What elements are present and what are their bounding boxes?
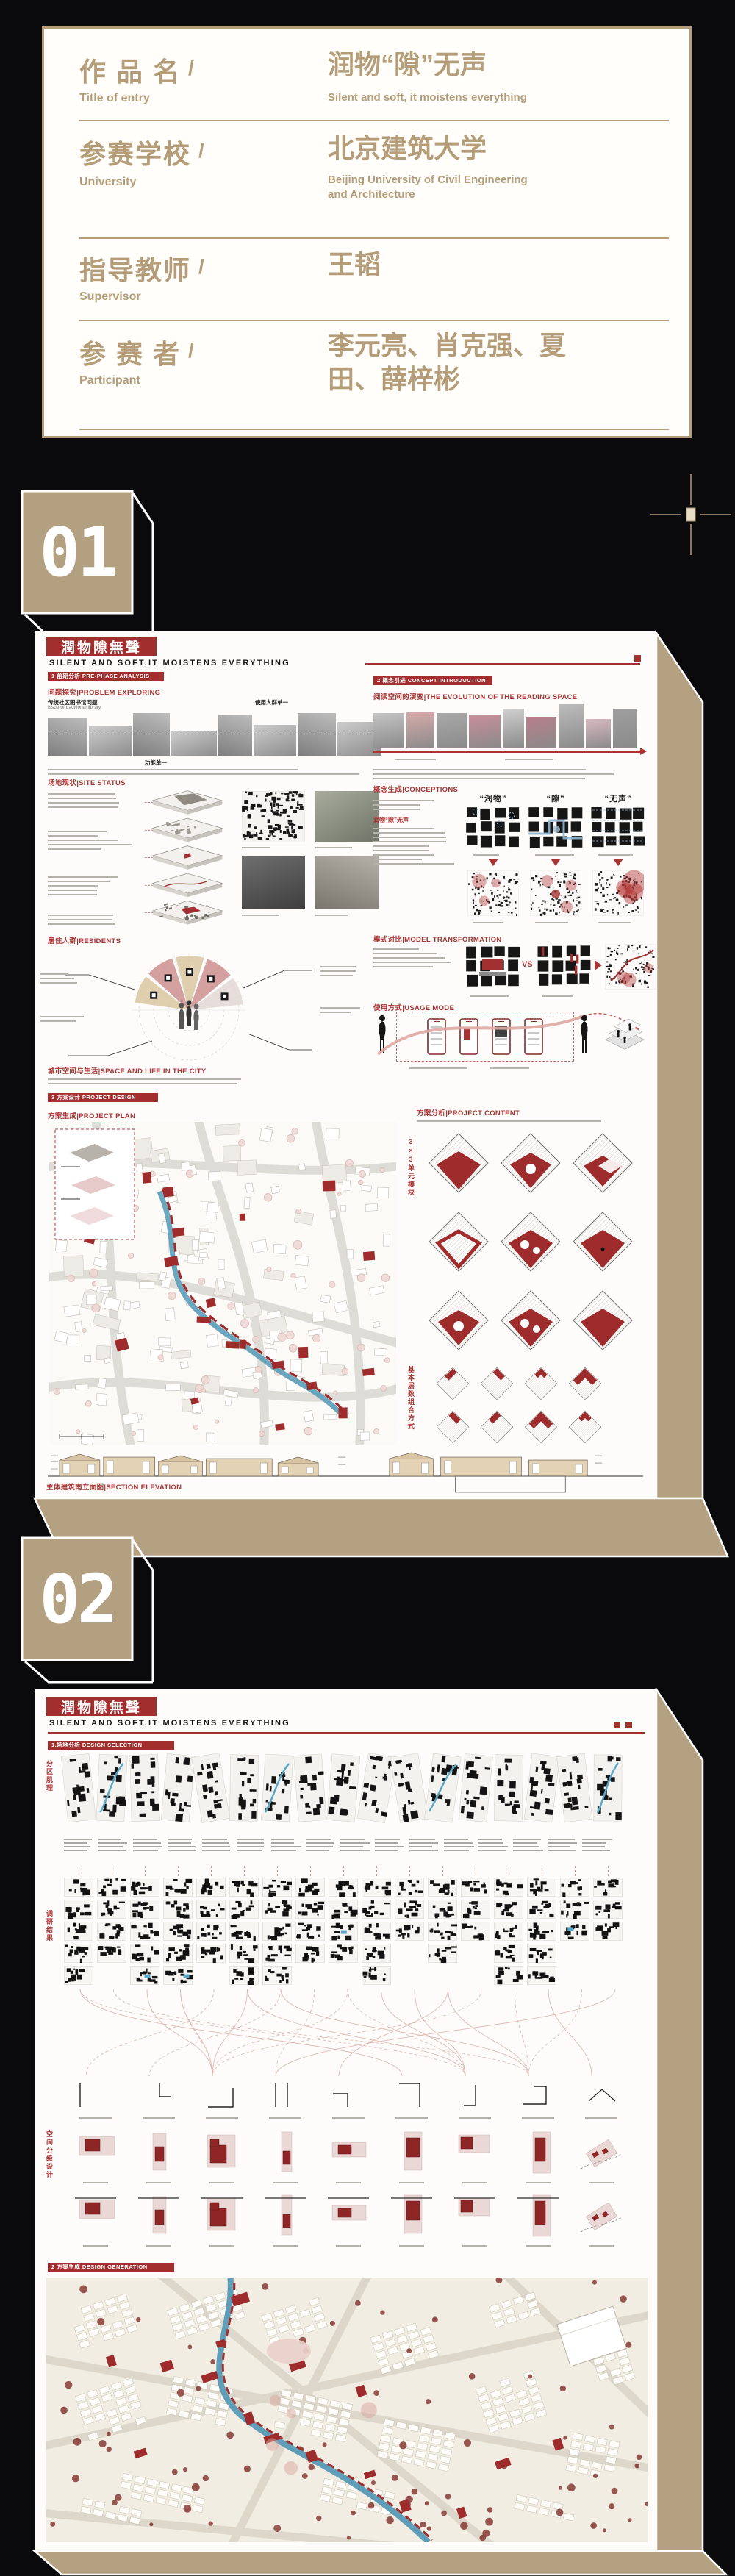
subhead-site: 场地现状|SITE STATUS bbox=[48, 777, 126, 787]
evolution-paragraph bbox=[373, 766, 614, 782]
model-result-map bbox=[605, 944, 656, 993]
crosshair-icon bbox=[650, 474, 731, 555]
space-grading-row-2 bbox=[64, 2192, 645, 2247]
concept-map-caption bbox=[598, 919, 631, 926]
concept-label-3: “无声” bbox=[589, 793, 647, 804]
unit-module-grid bbox=[426, 1131, 635, 1356]
concept-caption bbox=[473, 851, 499, 859]
right-arrow-icon bbox=[595, 960, 602, 970]
vertical-label-module: 3×3单元模块 bbox=[406, 1138, 416, 1197]
model-caption bbox=[470, 992, 509, 1000]
poster2-subtitle: SILENT AND SOFT,IT MOISTENS EVERYTHING bbox=[49, 1719, 290, 1728]
badge-number: 02 bbox=[22, 1538, 132, 1660]
vs-label: VS bbox=[522, 960, 533, 969]
subhead-model: 模式对比|MODEL TRANSFORMATION bbox=[373, 934, 501, 944]
value-supervisor: 王韬 bbox=[328, 248, 637, 282]
down-arrow-icon bbox=[551, 859, 561, 866]
subhead-problem: 问题探究|PROBLEM EXPLORING bbox=[48, 687, 160, 697]
section-1-bar: 1 前期分析 PRE-PHASE ANALYSIS bbox=[48, 672, 164, 681]
down-arrow-icon bbox=[613, 859, 623, 866]
photo-dashed-line bbox=[48, 734, 380, 734]
board-number-badge-2: 02 bbox=[21, 1536, 175, 1689]
label-participant-en: Participant bbox=[79, 374, 140, 387]
value-university: 北京建筑大学 bbox=[328, 132, 637, 165]
poster-board-2: 潤物隙無聲 SILENT AND SOFT,IT MOISTENS EVERYT… bbox=[35, 1689, 656, 2551]
concept-label-1: “润物” bbox=[465, 793, 522, 804]
concept-label-2: “隙” bbox=[527, 793, 584, 804]
img-caption bbox=[242, 844, 270, 851]
concept-map-2 bbox=[530, 870, 581, 920]
axonometric-masterplan bbox=[46, 2278, 648, 2542]
label-supervisor-en: Supervisor bbox=[79, 290, 141, 304]
label-university-en: University bbox=[79, 176, 136, 189]
residents-radial-diagram bbox=[64, 945, 314, 1070]
subhead-analysis: 方案分析|PROJECT CONTENT bbox=[417, 1107, 520, 1117]
usage-caption bbox=[409, 1065, 467, 1072]
reading-steps-render bbox=[599, 1009, 650, 1055]
concept-text-2 bbox=[373, 825, 454, 867]
concept-caption bbox=[535, 851, 574, 859]
value-participant: 李元亮、肖克强、夏田、薛梓彬 bbox=[328, 329, 578, 396]
vertical-label-zones: 分区肌理 bbox=[45, 1760, 54, 1792]
title-rule-square bbox=[634, 655, 641, 662]
section-glyph-row bbox=[64, 2079, 645, 2119]
site-text-4 bbox=[48, 912, 115, 928]
analysis-note bbox=[417, 1117, 601, 1125]
vertical-label-combo: 基本层数组合方式 bbox=[406, 1366, 416, 1431]
elevation-caption: 主体建筑南立面图|SECTION ELEVATION bbox=[46, 1481, 182, 1492]
label-title-en: Title of entry bbox=[79, 92, 150, 105]
site-plan-map bbox=[49, 1122, 396, 1445]
divider bbox=[79, 120, 669, 121]
aerial-photo bbox=[242, 856, 305, 909]
concept-diagram-2 bbox=[527, 806, 584, 852]
section-2-bar: 2 概念引进 CONCEPT INTRODUCTION bbox=[373, 676, 492, 685]
img-caption bbox=[315, 844, 352, 851]
roof-combo-grid bbox=[435, 1366, 603, 1448]
street-photo bbox=[315, 856, 379, 909]
label-participant: 参 赛 者/ bbox=[79, 333, 196, 371]
caption-users: 使用人群单一 bbox=[255, 698, 288, 706]
concept-red-phrase: 润物“隙”无声 bbox=[373, 816, 409, 824]
space-grading-row-1 bbox=[64, 2129, 645, 2183]
model-caption bbox=[542, 992, 573, 1000]
site-photo-1 bbox=[315, 791, 379, 842]
section-1-bar: 1.场地分析 DESIGN SELECTION bbox=[48, 1741, 174, 1750]
concept-map-1 bbox=[467, 870, 519, 920]
concept-caption bbox=[598, 851, 633, 859]
subhead-conceptions: 概念生成|CONCEPTIONS bbox=[373, 784, 458, 794]
poster-board-1: 潤物隙無聲 SILENT AND SOFT,IT MOISTENS EVERYT… bbox=[35, 631, 656, 1498]
figure-ground-map bbox=[242, 791, 305, 842]
entry-info-card: 作 品 名/ Title of entry 润物“隙”无声 Silent and… bbox=[42, 26, 692, 438]
connection-threads bbox=[64, 1989, 645, 2076]
subhead-plan: 方案生成|PROJECT PLAN bbox=[48, 1110, 135, 1120]
radial-note-right1 bbox=[320, 963, 356, 979]
label-university: 参赛学校/ bbox=[79, 133, 206, 171]
intro-paragraph bbox=[48, 766, 359, 778]
subhead-residents: 居住人群|RESIDENTS bbox=[48, 935, 121, 945]
value-title-en: Silent and soft, it moistens everything bbox=[328, 90, 637, 105]
badge-number: 01 bbox=[22, 491, 132, 613]
value-title: 润物“隙”无声 bbox=[328, 48, 637, 82]
vertical-label-research: 调研结果 bbox=[45, 1910, 54, 1942]
competition-entry-page: 作 品 名/ Title of entry 润物“隙”无声 Silent and… bbox=[0, 0, 735, 2576]
timeline-caption bbox=[505, 756, 553, 763]
poster1-subtitle: SILENT AND SOFT,IT MOISTENS EVERYTHING bbox=[49, 659, 290, 668]
radial-note-right2 bbox=[320, 1004, 360, 1016]
fragment-notes-row bbox=[64, 1836, 652, 1853]
model-future-diagram bbox=[536, 944, 593, 990]
model-text bbox=[373, 945, 451, 970]
poster1-title: 潤物隙無聲 bbox=[46, 637, 157, 656]
user-silhouette-left bbox=[375, 1015, 390, 1059]
board-number-badge-1: 01 bbox=[21, 490, 175, 643]
model-traditional-diagram bbox=[465, 944, 522, 990]
divider bbox=[79, 429, 669, 430]
divider bbox=[79, 237, 669, 239]
plan-matrix bbox=[64, 1866, 652, 1988]
concept-diagram-3 bbox=[589, 806, 647, 852]
timeline-caption bbox=[395, 756, 436, 763]
label-title: 作 品 名/ bbox=[79, 51, 196, 89]
slash-mark: / bbox=[188, 57, 196, 79]
poster2-title: 潤物隙無聲 bbox=[46, 1697, 157, 1716]
label-supervisor: 指导教师/ bbox=[79, 249, 206, 287]
site-text-3 bbox=[48, 873, 118, 898]
timeline-arrow bbox=[373, 751, 641, 753]
caption-issue-en: Issue of traditional library bbox=[48, 705, 101, 710]
concept-diagram-1 bbox=[465, 806, 522, 852]
vertical-label-grading: 空间分级设计 bbox=[45, 2130, 54, 2179]
value-university-en: Beijing University of Civil Engineering … bbox=[328, 173, 548, 202]
concept-map-3 bbox=[592, 870, 644, 920]
library-photo-strip bbox=[48, 710, 380, 756]
subhead-evolution: 阅读空间的演变|THE EVOLUTION OF THE READING SPA… bbox=[373, 691, 577, 701]
section-2-bar: 2 方案生成 DESIGN GENERATION bbox=[48, 2263, 174, 2272]
subhead-usage: 使用方式|USAGE MODE bbox=[373, 1002, 454, 1012]
radial-note-left1 bbox=[40, 970, 77, 987]
city-paragraph bbox=[48, 1076, 241, 1087]
title-rule-square bbox=[614, 1722, 620, 1728]
img-caption bbox=[242, 912, 279, 919]
img-caption bbox=[315, 912, 348, 919]
concept-map-caption bbox=[535, 919, 568, 926]
user-silhouette-right bbox=[577, 1015, 592, 1059]
section-3-bar: 3 方案设计 PROJECT DESIGN bbox=[48, 1093, 158, 1102]
evolution-collage bbox=[373, 701, 647, 748]
site-fragments-row bbox=[64, 1754, 652, 1831]
usage-caption bbox=[490, 1065, 529, 1072]
down-arrow-icon bbox=[488, 859, 498, 866]
radial-note-left2 bbox=[40, 1013, 84, 1025]
site-text-1 bbox=[48, 790, 119, 811]
concept-text-1 bbox=[373, 797, 434, 813]
site-layer-stack-axon bbox=[145, 788, 230, 933]
site-text-2 bbox=[48, 828, 132, 853]
concept-map-caption bbox=[473, 919, 503, 926]
phone-mockups bbox=[427, 1018, 543, 1055]
subhead-city: 城市空间与生活|SPACE AND LIFE IN THE CITY bbox=[48, 1065, 207, 1076]
title-rule bbox=[48, 1732, 645, 1734]
title-rule bbox=[365, 663, 640, 665]
divider bbox=[79, 320, 669, 321]
app-flow-box bbox=[396, 1012, 574, 1062]
title-rule-square bbox=[625, 1722, 632, 1728]
